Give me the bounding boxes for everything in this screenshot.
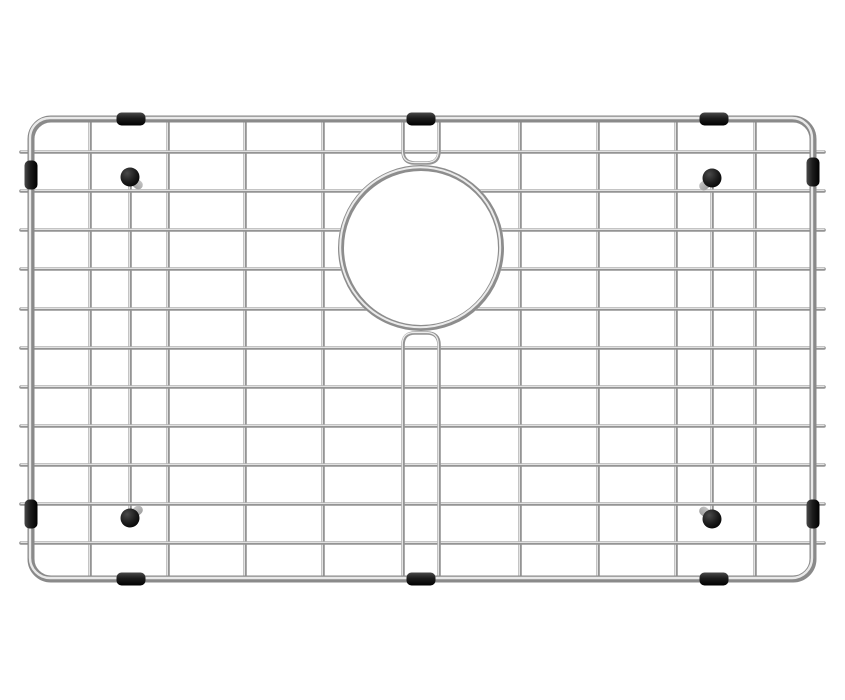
sink-bottom-grid-image — [0, 0, 845, 700]
rubber-foot — [121, 168, 145, 192]
rubber-foot — [697, 505, 721, 529]
rubber-foot — [121, 504, 145, 528]
foot-cap — [703, 510, 722, 529]
rubber-bumper-left — [25, 500, 38, 529]
rubber-bumper-top — [407, 113, 436, 126]
rubber-bumper-right — [807, 500, 820, 529]
rubber-bumper-bottom — [117, 573, 146, 586]
foot-cap — [121, 168, 140, 187]
rubber-bumper-bottom — [407, 573, 436, 586]
foot-cap — [703, 169, 722, 188]
rubber-foot — [697, 169, 721, 193]
rubber-bumper-top — [117, 113, 146, 126]
rubber-bumper-left — [25, 161, 38, 190]
bypass-wire — [403, 119, 439, 163]
product-photo — [0, 0, 845, 700]
rubber-bumper-top — [700, 113, 729, 126]
foot-cap — [121, 509, 140, 528]
rubber-bumper-right — [807, 158, 820, 187]
rubber-bumper-bottom — [700, 573, 729, 586]
